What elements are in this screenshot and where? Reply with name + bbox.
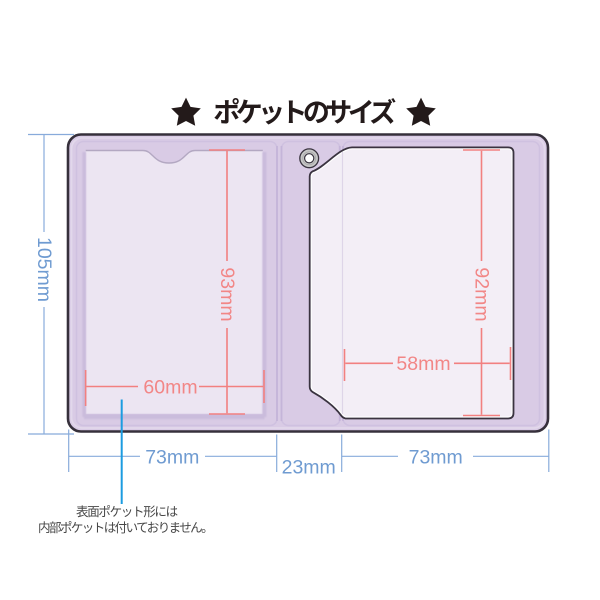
svg-text:内部ポケットは付いておりません。: 内部ポケットは付いておりません。 xyxy=(38,517,212,536)
svg-text:60mm: 60mm xyxy=(143,376,197,398)
svg-text:93mm: 93mm xyxy=(216,267,238,321)
svg-text:73mm: 73mm xyxy=(145,446,199,468)
svg-text:23mm: 23mm xyxy=(282,457,336,479)
svg-text:92mm: 92mm xyxy=(471,267,493,321)
svg-text:73mm: 73mm xyxy=(409,446,463,468)
svg-text:105mm: 105mm xyxy=(33,237,55,302)
svg-text:58mm: 58mm xyxy=(396,353,450,375)
svg-text:ポケットのサイズ: ポケットのサイズ xyxy=(213,91,396,130)
